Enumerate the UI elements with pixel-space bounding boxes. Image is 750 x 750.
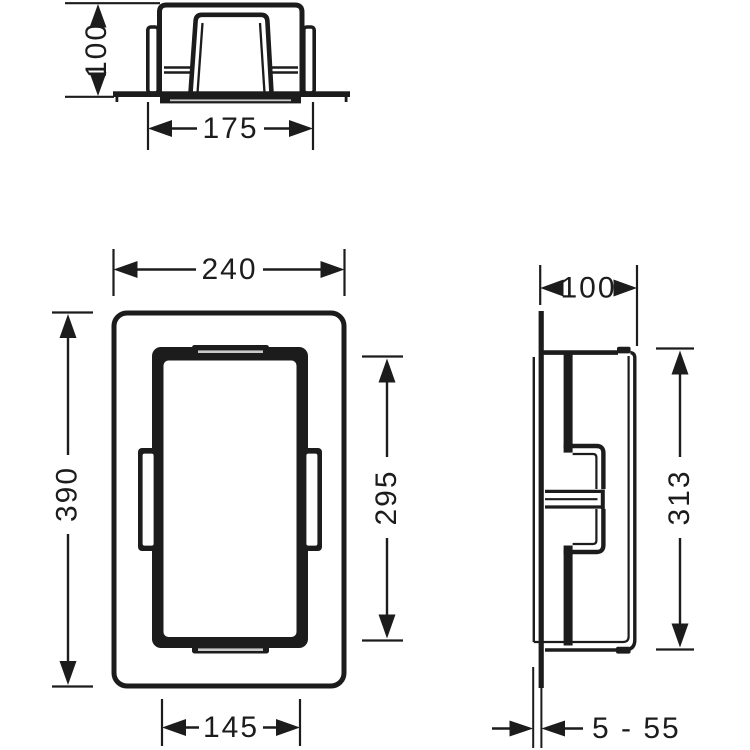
arrow-right-icon (510, 721, 534, 737)
dim-label-front-frame-height: 295 (370, 469, 403, 525)
side-view-frame-arm-bottom-inner (573, 509, 597, 544)
top-view-flange-nub-right (345, 97, 348, 102)
dim-label-front-width: 240 (201, 253, 257, 286)
dim-front-height: 390 (51, 313, 94, 687)
side-view: 100 313 5 - 55 (492, 265, 696, 748)
arrow-right-icon (276, 719, 300, 736)
front-view: 240 390 295 145 (51, 249, 404, 746)
dim-label-side-tile-range: 5 - 55 (592, 712, 681, 745)
side-view-body-right-outer (545, 353, 635, 650)
dim-front-width: 240 (114, 249, 345, 296)
dim-top-width: 175 (148, 102, 313, 150)
arrow-right-icon (614, 280, 638, 297)
front-view-tab-top-slot (198, 350, 263, 353)
technical-drawing-page: 100 175 (0, 0, 750, 750)
arrow-right-icon (321, 261, 345, 278)
arrow-down-icon (672, 624, 689, 648)
arrow-right-icon (289, 120, 313, 137)
dim-side-height: 313 (656, 349, 696, 650)
top-view-flange (113, 91, 350, 97)
arrow-down-icon (60, 661, 77, 685)
arrow-up-icon (379, 359, 396, 383)
side-view-spring-clip (545, 490, 603, 510)
dim-side-tile-range: 5 - 55 (492, 667, 681, 748)
front-view-frame-opening (164, 361, 297, 638)
arrow-up-icon (60, 314, 77, 338)
dim-label-front-height: 390 (51, 466, 84, 522)
technical-drawing-canvas: 100 175 (0, 0, 750, 750)
side-view-frame-rail-top (564, 353, 573, 453)
arrow-left-icon (541, 721, 565, 737)
top-view-clip-left (148, 27, 158, 93)
dim-top-depth: 100 (65, 3, 160, 97)
dim-label-side-depth: 100 (560, 272, 616, 305)
side-view-flange (539, 311, 544, 688)
side-view-tab-bottom (616, 647, 631, 654)
arrow-left-icon (148, 120, 172, 137)
dim-side-depth: 100 (540, 265, 637, 346)
arrow-up-icon (672, 351, 689, 375)
dim-label-top-width: 175 (202, 112, 258, 145)
dim-front-frame-width: 145 (162, 699, 300, 746)
arrow-left-icon (114, 261, 138, 278)
dim-front-frame-height: 295 (362, 357, 403, 641)
front-view-clip-right-inner (306, 454, 317, 546)
side-view-tab-top (617, 347, 631, 354)
dim-label-top-depth: 100 (80, 22, 113, 78)
front-view-tab-bottom-slot (198, 648, 263, 651)
arrow-down-icon (379, 615, 396, 639)
arrow-left-icon (162, 719, 186, 736)
top-view: 100 175 (65, 3, 350, 150)
front-view-clip-left-inner (143, 454, 154, 546)
front-view-tab-top (192, 345, 269, 355)
side-view-frame-arm-top-inner (573, 454, 597, 489)
dim-label-side-height: 313 (663, 469, 696, 525)
side-view-frame-rail-bottom (564, 546, 573, 646)
top-view-clip-right (304, 27, 314, 93)
dim-label-front-frame-width: 145 (203, 711, 259, 744)
top-view-flange-nub-left (116, 97, 119, 102)
top-view-frame-edge-slot (170, 99, 291, 101)
